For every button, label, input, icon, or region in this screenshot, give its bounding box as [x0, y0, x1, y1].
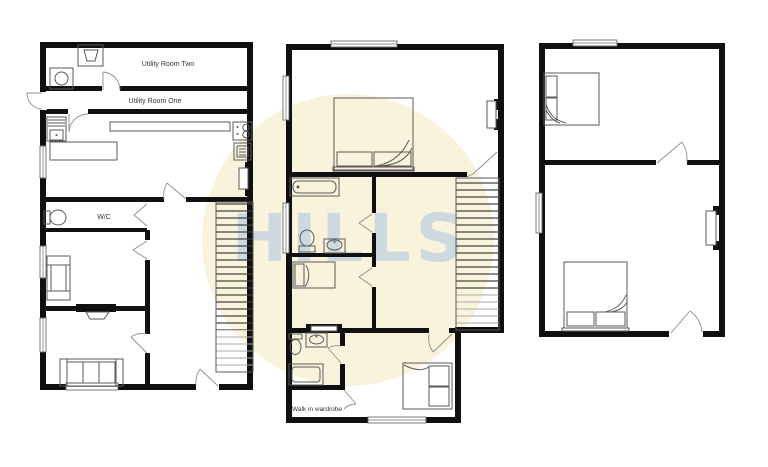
watermark-text: HILLS — [232, 200, 468, 277]
armchair-icon — [47, 256, 70, 300]
room-label-utility-room-two: Utility Room Two — [142, 61, 194, 68]
kitchen-counter — [50, 122, 230, 160]
floorplan-page: HILLS — [0, 0, 768, 467]
room-label-wc: W/C — [97, 214, 111, 221]
double-bed-icon — [562, 262, 629, 331]
exterior-wall — [542, 46, 722, 334]
sofa-icon — [60, 359, 123, 386]
ground-floor-plan: Utility Room Two Utility Room One W/C — [27, 45, 253, 390]
door-arc — [657, 142, 703, 337]
staircase — [456, 178, 499, 330]
washing-machine-icon — [50, 68, 73, 89]
second-floor-plan — [536, 40, 725, 337]
single-bed-icon — [544, 73, 599, 125]
floorplan-drawing: HILLS — [0, 0, 768, 467]
staircase — [216, 202, 253, 372]
window-icon — [536, 40, 617, 233]
fireplace-icon — [76, 304, 116, 319]
utility-sink-icon — [78, 45, 103, 66]
oven-icon — [234, 143, 251, 160]
room-label-utility-room-one: Utility Room One — [129, 98, 182, 105]
interior-walls — [539, 160, 725, 165]
room-label-walk-in-wardrobe: Walk in wardrobe — [292, 406, 342, 413]
toilet-icon — [44, 210, 66, 225]
kitchen-sink-icon — [47, 117, 66, 141]
window-icon — [40, 146, 118, 390]
